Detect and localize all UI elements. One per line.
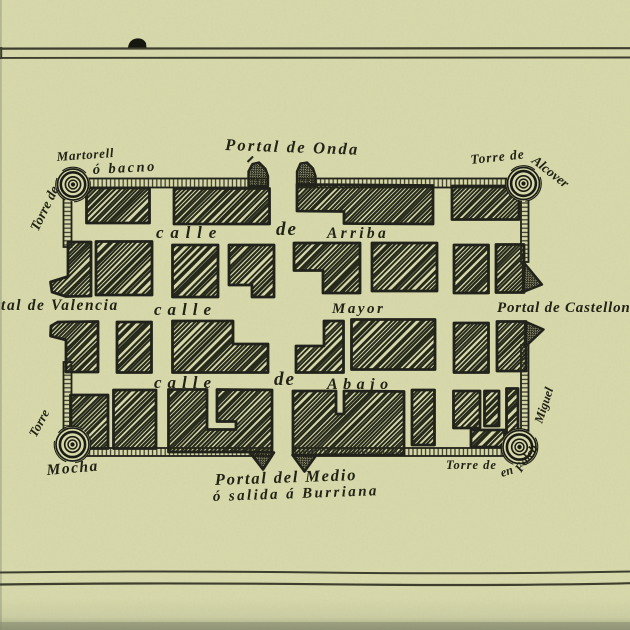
- svg-text:calle: calle: [156, 223, 223, 242]
- svg-text:Arriba: Arriba: [326, 225, 389, 242]
- svg-text:Portal de Castellon: Portal de Castellon: [497, 300, 630, 316]
- svg-text:Abajo: Abajo: [326, 376, 394, 393]
- svg-text:Portal de Valencia: Portal de Valencia: [0, 297, 119, 314]
- svg-text:de: de: [276, 219, 298, 240]
- svg-text:ó bacno: ó bacno: [92, 159, 157, 178]
- svg-text:calle: calle: [154, 300, 217, 319]
- svg-text:calle: calle: [154, 373, 217, 392]
- svg-text:de: de: [274, 369, 296, 390]
- svg-text:Mayor: Mayor: [331, 301, 385, 317]
- svg-text:Torre de: Torre de: [446, 458, 497, 472]
